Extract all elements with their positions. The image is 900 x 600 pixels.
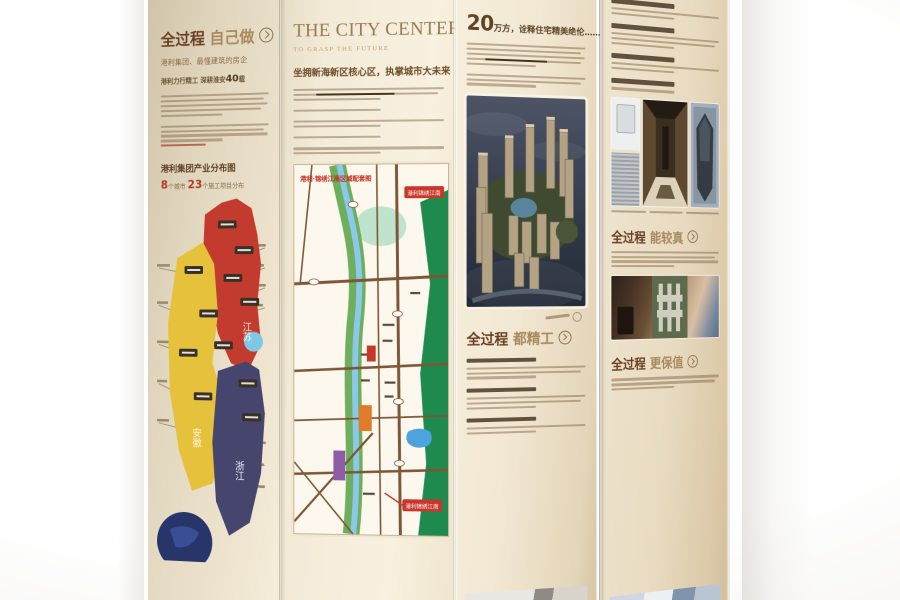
panel2-heading-cn: 坐拥新海新区核心区，执掌城市大未来	[293, 63, 444, 79]
svg-text:港利锦绣江南: 港利锦绣江南	[407, 190, 441, 198]
developer-logo-mark	[467, 312, 582, 323]
panel1-heading: 全过程 自己做	[161, 22, 269, 50]
map-street-labels	[361, 292, 420, 496]
panel3-heading: 20万方，诠释住宅精美绝伦……	[467, 11, 586, 40]
area-road-map: 港利·锦绣江南区域配套图 港利锦绣江南 港利锦绣江南	[293, 163, 449, 537]
brochure-panel-1: 全过程 自己做 港利集团、最懂建筑的房企 港利力行精工 深耕淮安40载 港利集团…	[148, 0, 280, 600]
panel2-paragraph-4	[293, 135, 444, 139]
panel1-paragraph-2	[161, 123, 269, 147]
label-jiangsu: 江苏	[241, 322, 252, 343]
panel1-tagline: 港利力行精工 深耕淮安40载	[161, 72, 269, 86]
panel4-process-heading-1: 全过程 能较真	[611, 226, 718, 247]
brochure-panel-2: THE CITY CENTER TO GRASP THE FUTURE 坐拥新海…	[281, 0, 455, 600]
panel2-paragraph-5	[293, 146, 444, 154]
panel2-subtitle: TO GRASP THE FUTURE	[293, 44, 444, 53]
label-anhui: 安徽	[190, 427, 201, 449]
brochure-panel-3: 20万方，诠释住宅精美绝伦……	[455, 0, 596, 600]
panel3-bottom-photo-edge	[465, 586, 588, 600]
panel2-paragraph-1	[293, 87, 444, 101]
figure-segment	[687, 276, 718, 338]
panel3-section-1	[467, 356, 586, 379]
entry-door-photo	[691, 102, 719, 207]
chevron-right-circle-icon	[687, 355, 698, 368]
panel3-section-2	[467, 386, 586, 410]
elevator-hall-photo	[642, 99, 687, 206]
province-distribution-map: 江苏 安徽 浙江	[157, 195, 267, 566]
label-zhejiang: 浙江	[233, 461, 244, 482]
panel3-paragraph-1	[467, 43, 586, 69]
frame-wall-segment	[652, 276, 688, 339]
map-red-marker-1	[367, 346, 376, 362]
panel3-process-heading: 全过程 都精工	[467, 327, 586, 349]
chevron-right-circle-icon	[687, 230, 698, 243]
panel4-paragraph-1	[611, 251, 718, 268]
panel2-paragraph-3	[293, 119, 444, 128]
interior-photo-row	[611, 97, 718, 207]
panel4-section-1	[611, 0, 718, 24]
panel1-paragraph-1	[161, 92, 269, 116]
map-orange-block	[359, 406, 372, 432]
appliance-photo	[611, 97, 639, 205]
map-purple-block	[333, 451, 345, 481]
map-lake	[406, 429, 431, 448]
panel1-subheading: 港利集团、最懂建筑的房企	[161, 53, 269, 68]
map-title-text: 港利·锦绣江南区域配套图	[300, 174, 371, 183]
panel4-process-heading-2: 全过程 更保值	[611, 351, 718, 374]
chevron-right-circle-icon	[259, 27, 273, 43]
panel3-heading-number: 20	[467, 11, 494, 36]
photo-scene: 全过程 自己做 港利集团、最懂建筑的房企 港利力行精工 深耕淮安40载 港利集团…	[0, 0, 900, 600]
panel3-paragraph-2	[467, 73, 586, 89]
brochure-panel-4: 全过程 能较真 全过程 更保值	[601, 0, 730, 600]
panel1-heading-strong: 全过程	[161, 25, 205, 50]
chevron-right-circle-icon	[559, 331, 572, 345]
living-room-segment	[611, 276, 651, 340]
map-callout-top: 港利锦绣江南	[404, 186, 444, 198]
interior-collage-photo	[611, 276, 718, 340]
panel2-title: THE CITY CENTER	[293, 18, 444, 42]
panel4-section-4	[611, 78, 718, 96]
folded-brochure: 全过程 自己做 港利集团、最懂建筑的房企 港利力行精工 深耕淮安40载 港利集团…	[0, 0, 900, 600]
panel1-stats: 8个城市 23个施工项目分布	[161, 177, 269, 192]
panel4-section-2	[611, 23, 718, 53]
aerial-night-rendering-photo	[467, 95, 586, 307]
panel4-section-3	[611, 53, 718, 77]
panel1-heading-light: 自己做	[210, 23, 255, 49]
panel4-paragraph-2	[611, 375, 718, 391]
panel2-paragraph-2	[293, 108, 444, 112]
panel1-map-title: 港利集团产业分布图	[161, 161, 269, 176]
panel4-bottom-photo-edge	[610, 584, 721, 600]
panel3-section-3	[467, 415, 586, 435]
region-zhejiang	[212, 361, 265, 537]
photo-captions	[611, 207, 718, 214]
